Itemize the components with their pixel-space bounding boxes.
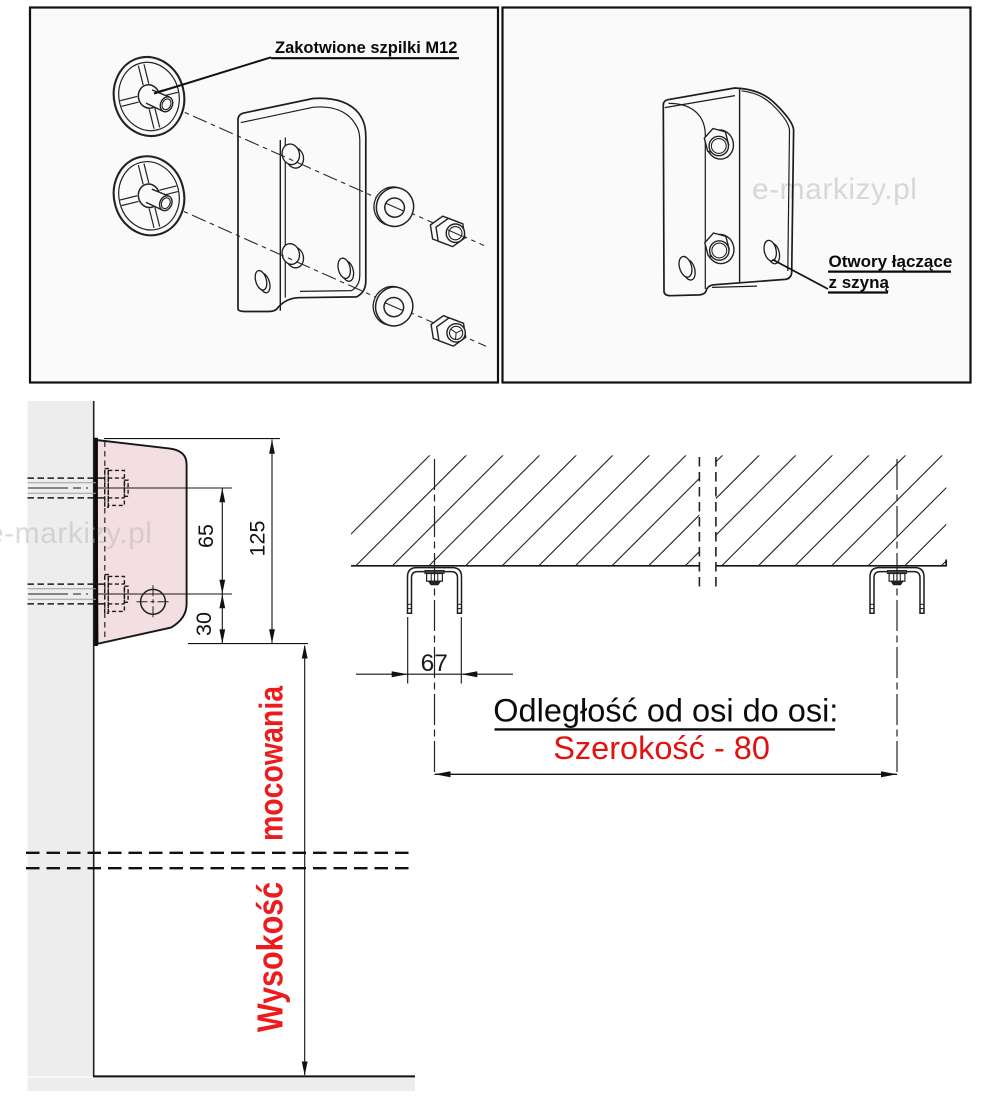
- svg-text:30: 30: [192, 612, 216, 636]
- svg-text:e-markizy.pl: e-markizy.pl: [752, 173, 917, 206]
- svg-text:Szerokość - 80: Szerokość - 80: [553, 730, 770, 766]
- svg-text:67: 67: [421, 650, 448, 677]
- svg-text:z szyną: z szyną: [829, 273, 890, 292]
- svg-text:mocowania: mocowania: [252, 685, 290, 841]
- svg-text:65: 65: [194, 524, 218, 548]
- svg-text:e-markizy.pl: e-markizy.pl: [0, 517, 152, 550]
- svg-text:Zakotwione szpilki M12: Zakotwione szpilki M12: [275, 39, 457, 57]
- svg-text:Wysokość: Wysokość: [251, 882, 291, 1032]
- svg-text:Otwory łączące: Otwory łączące: [829, 252, 953, 271]
- svg-text:Odległość od osi do osi:: Odległość od osi do osi:: [493, 693, 838, 729]
- svg-text:125: 125: [245, 521, 269, 557]
